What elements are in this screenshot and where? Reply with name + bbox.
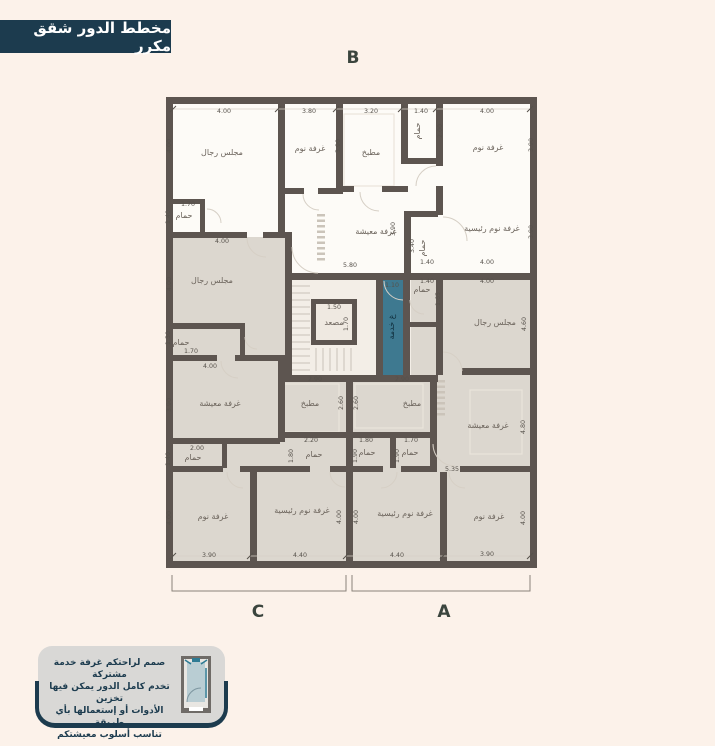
room-label: مجلس رجال — [474, 318, 516, 327]
dim-label: 1.70 — [343, 317, 350, 331]
dim-label: 3.20 — [364, 108, 378, 115]
room-label: غرفة نوم — [295, 144, 326, 153]
room-label: غرفة معيشة — [467, 421, 508, 430]
room-label: حمام — [402, 448, 419, 457]
dim-label: 2.00 — [437, 124, 444, 138]
dim-label: 1.80 — [288, 449, 295, 463]
dim-label: 5.35 — [445, 466, 459, 473]
note-line-3: الأدوات أو إستعمالها بأي طريقة — [46, 705, 173, 729]
dim-label: 1.90 — [394, 449, 401, 463]
dim-label: 1.70 — [404, 437, 418, 444]
dim-label: 3.90 — [528, 138, 535, 152]
room-label: مجلس رجال — [201, 148, 243, 157]
room-label: مطبخ — [403, 399, 421, 408]
room-label: مطبخ — [362, 148, 380, 157]
room-label: حمام — [306, 450, 323, 459]
dim-label: 4.00 — [480, 108, 494, 115]
dim-label: 3.90 — [528, 225, 535, 239]
dim-label: 4.40 — [390, 552, 404, 559]
room-label: حمام — [418, 239, 427, 256]
dim-label: 4.00 — [520, 511, 527, 525]
dim-label: 3.90 — [166, 398, 173, 412]
room-label: مطبخ — [301, 399, 319, 408]
room-label: غرفة نوم — [198, 512, 229, 521]
dim-label: 3.90 — [390, 222, 397, 236]
room-label: غرفة معيشة — [199, 399, 240, 408]
note-line-4: تناسب أسلوب معيشتكم — [46, 729, 173, 741]
dim-label: 4.60 — [521, 317, 528, 331]
dim-label: 2.20 — [304, 437, 318, 444]
service-room-note-card: صمم لراحتكم غرفة خدمة مشتركة تخدم كامل ا… — [38, 646, 225, 724]
note-line-2: تخدم كامل الدور يمكن فيها تخزين — [46, 681, 173, 705]
dim-label: 3.40 — [409, 239, 416, 253]
room-label: غ خدمة — [387, 314, 396, 339]
note-text: صمم لراحتكم غرفة خدمة مشتركة تخدم كامل ا… — [46, 657, 173, 741]
dim-label: 5.80 — [343, 262, 357, 269]
room-label: غرفة نوم رئيسية — [274, 506, 329, 515]
floor-plan: مجلس رجالغرفة نوممطبخحمامغرفة نومحمامغرف… — [0, 0, 715, 746]
dim-label: 1.40 — [165, 210, 172, 224]
room-label: حمام — [359, 448, 376, 457]
note-line-1: صمم لراحتكم غرفة خدمة مشتركة — [46, 657, 173, 681]
dim-label: 1.30 — [165, 331, 172, 345]
dim-label: 2.00 — [190, 445, 204, 452]
dim-label: 4.00 — [480, 259, 494, 266]
dim-label: 4.00 — [353, 510, 360, 524]
dim-label: 4.00 — [203, 363, 217, 370]
dim-label: 3.90 — [335, 139, 342, 153]
dim-label: 2.90 — [395, 376, 409, 383]
dim-label: 3.90 — [480, 551, 494, 558]
room-label: غرفة نوم رئيسية — [377, 509, 432, 518]
dim-label: 4.00 — [217, 108, 231, 115]
service-room-icon — [181, 656, 211, 713]
dim-label: 1.50 — [327, 304, 341, 311]
room-label: حمام — [413, 122, 422, 139]
room-label: حمام — [173, 338, 190, 347]
dim-label: 4.00 — [215, 238, 229, 245]
dim-label: 2.60 — [353, 396, 360, 410]
dim-label: 1.10 — [385, 282, 399, 289]
room-label: حمام — [176, 211, 193, 220]
room-label: غرفة نوم — [474, 512, 505, 521]
room-label: مجلس رجال — [191, 276, 233, 285]
dim-label: 4.80 — [520, 420, 527, 434]
dim-label: 4.00 — [480, 278, 494, 285]
room-label: مصعد — [324, 318, 343, 327]
section-brackets — [172, 575, 530, 591]
dim-label: 1.80 — [359, 437, 373, 444]
dim-label: 1.90 — [352, 449, 359, 463]
dim-label: 1.40 — [414, 108, 428, 115]
dim-label: 2.90 — [308, 376, 322, 383]
dim-label: 1.40 — [420, 278, 434, 285]
room-label: حمام — [185, 453, 202, 462]
dim-label: 1.40 — [420, 259, 434, 266]
dim-label: 4.00 — [336, 510, 343, 524]
dim-label: 1.65 — [435, 292, 442, 306]
dim-label: 4.00 — [166, 511, 173, 525]
dim-label: 1.70 — [184, 348, 198, 355]
room-label: حمام — [414, 285, 431, 294]
room-label: غرفة نوم رئيسية — [464, 224, 519, 233]
dim-label: 3.80 — [302, 108, 316, 115]
room-label: غرفة نوم — [473, 143, 504, 152]
dim-label: 4.00 — [166, 139, 173, 153]
dim-label: 1.70 — [181, 201, 195, 208]
dim-label: 4.00 — [166, 277, 173, 291]
page: مخطط الدور شقق مكرر B C A — [0, 0, 715, 746]
dim-label: 1.40 — [165, 452, 172, 466]
dim-label: 3.90 — [202, 552, 216, 559]
dim-label: 2.60 — [338, 396, 345, 410]
dim-label: 4.40 — [293, 552, 307, 559]
